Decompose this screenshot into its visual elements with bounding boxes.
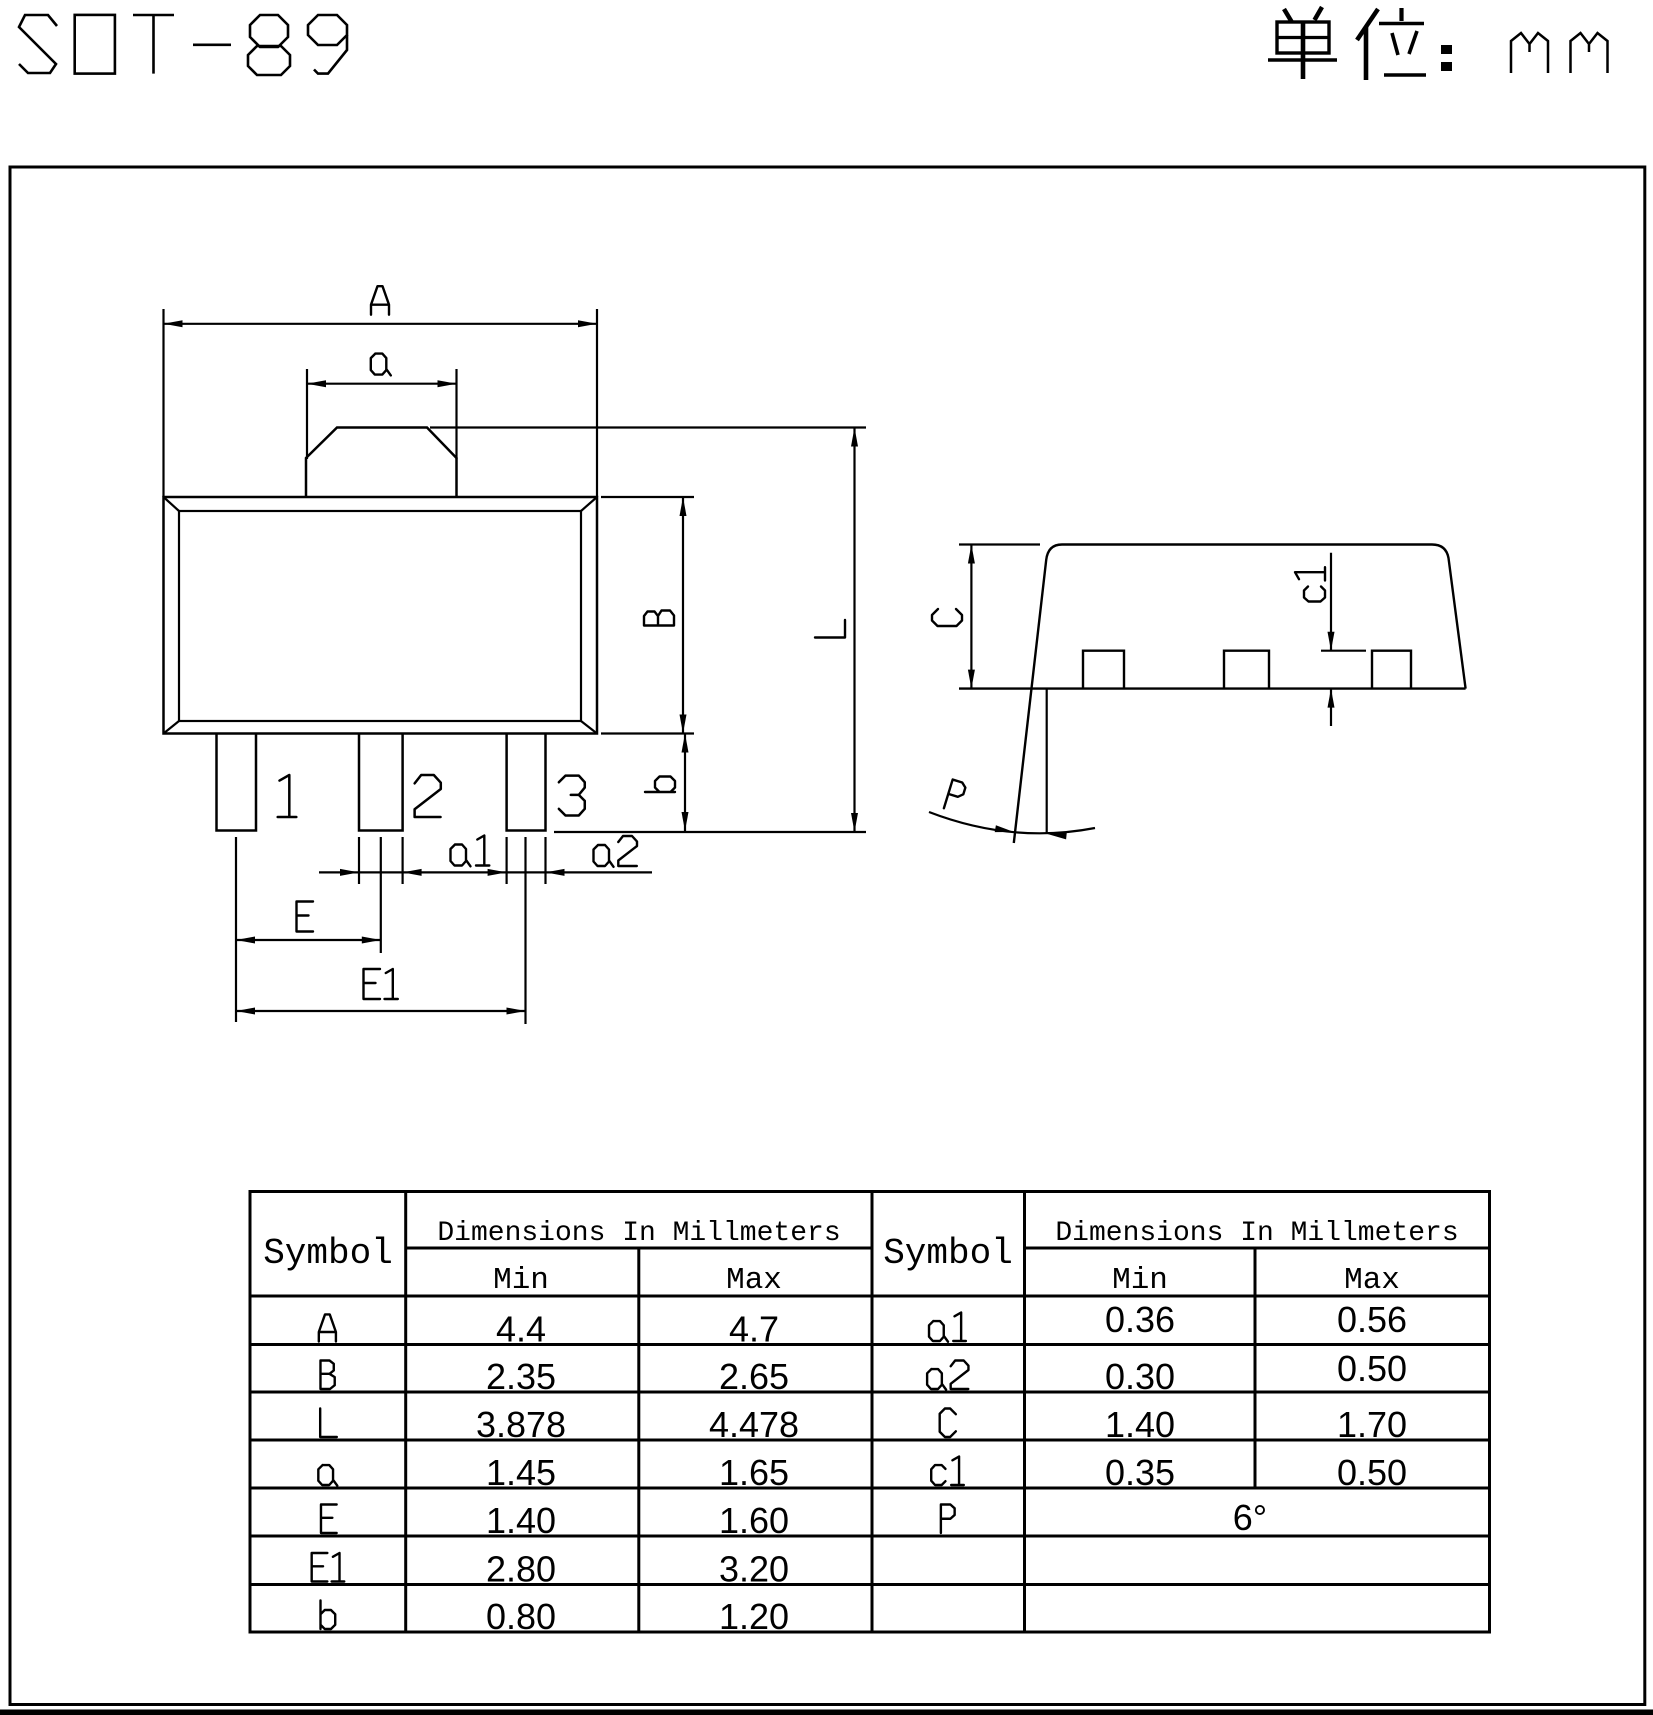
svg-text:3.20: 3.20 [719,1549,789,1590]
svg-text:Dimensions In Millmeters: Dimensions In Millmeters [1055,1218,1458,1249]
svg-text:Dimensions In Millmeters: Dimensions In Millmeters [437,1218,840,1249]
svg-text:Max: Max [726,1263,782,1298]
svg-text:0.36: 0.36 [1105,1299,1175,1340]
svg-text:4.478: 4.478 [709,1404,799,1445]
svg-text:1.60: 1.60 [719,1500,789,1541]
svg-text:0.56: 0.56 [1337,1299,1407,1340]
svg-text:4.7: 4.7 [729,1309,779,1350]
svg-text:Min: Min [493,1263,549,1298]
svg-text:6°: 6° [1233,1497,1267,1538]
svg-text:0.80: 0.80 [486,1596,556,1637]
svg-text:1.65: 1.65 [719,1452,789,1493]
svg-text:1.40: 1.40 [486,1500,556,1541]
svg-text:1.45: 1.45 [486,1452,556,1493]
svg-text:2.80: 2.80 [486,1549,556,1590]
svg-text:0.30: 0.30 [1105,1356,1175,1397]
svg-text:3.878: 3.878 [476,1404,566,1445]
svg-text:Symbol: Symbol [263,1233,393,1274]
svg-text:4.4: 4.4 [496,1309,546,1350]
svg-text:0.50: 0.50 [1337,1348,1407,1389]
svg-text:Symbol: Symbol [883,1233,1013,1274]
svg-text:1.40: 1.40 [1105,1404,1175,1445]
svg-text:1.70: 1.70 [1337,1404,1407,1445]
svg-text:0.35: 0.35 [1105,1452,1175,1493]
svg-text:0.50: 0.50 [1337,1452,1407,1493]
svg-text:Min: Min [1112,1263,1168,1298]
svg-text:2.65: 2.65 [719,1356,789,1397]
svg-text:Max: Max [1344,1263,1400,1298]
svg-text:1.20: 1.20 [719,1596,789,1637]
svg-text:2.35: 2.35 [486,1356,556,1397]
